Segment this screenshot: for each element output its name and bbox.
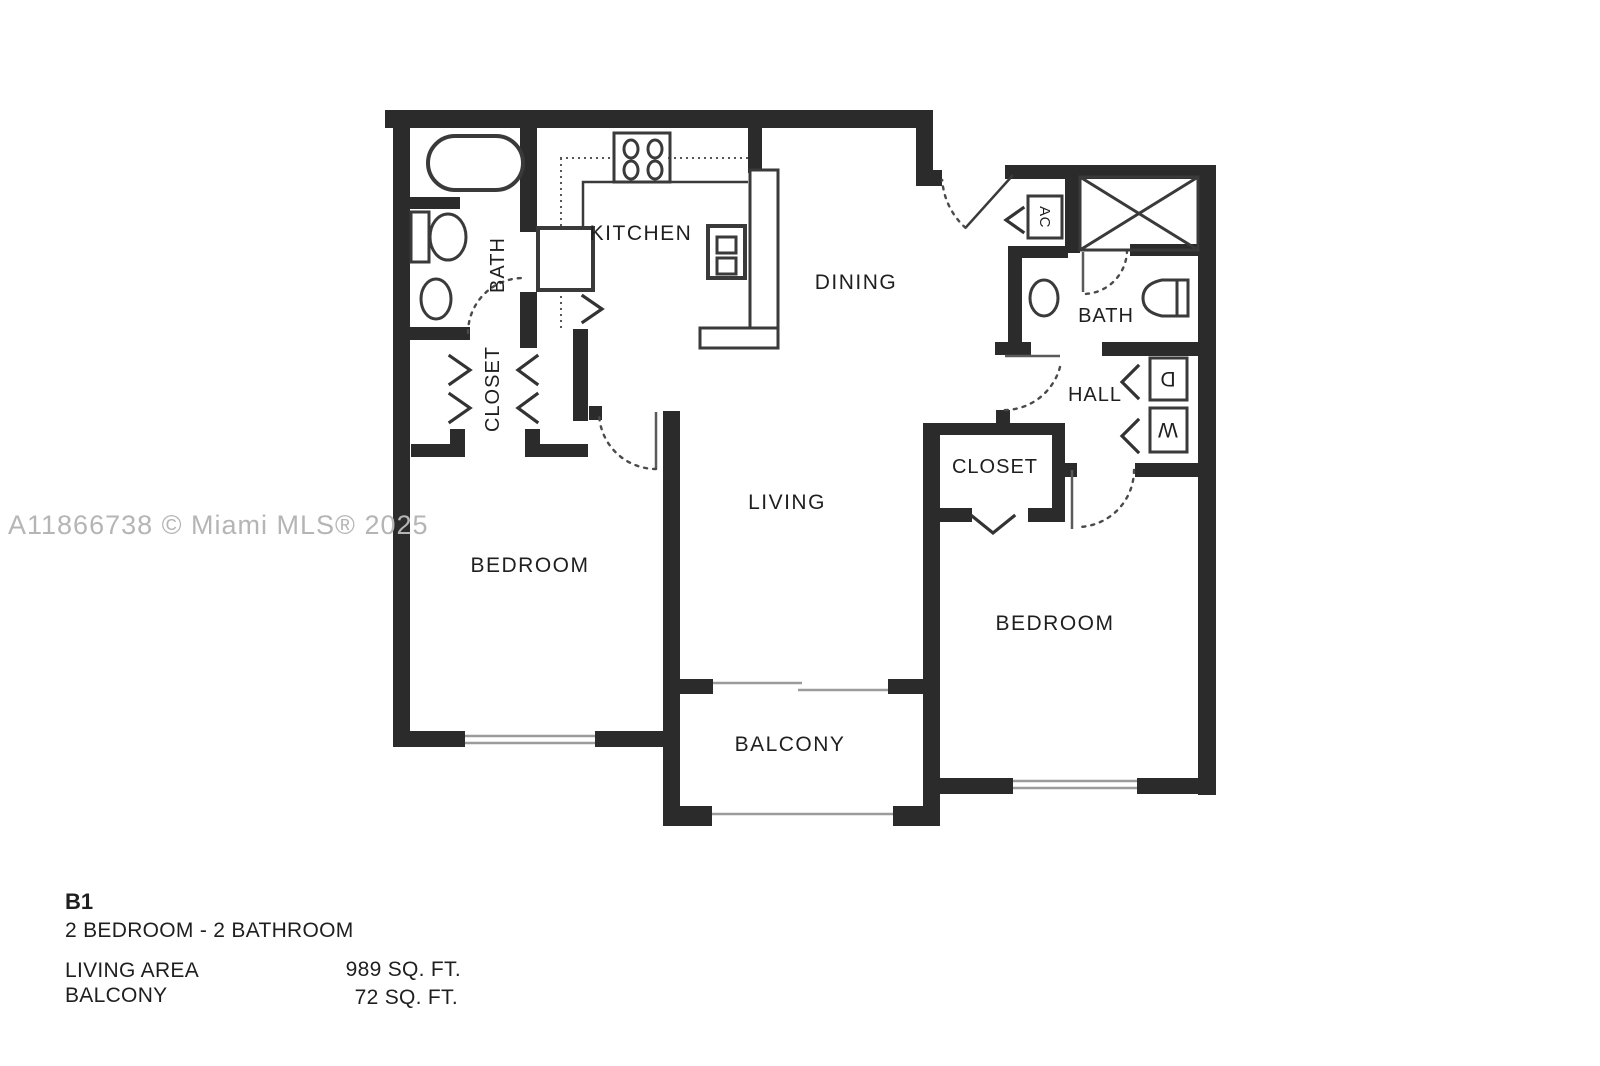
wall-kitchen-top-stub — [748, 128, 762, 173]
plan-type: 2 BEDROOM - 2 BATHROOM — [65, 919, 354, 942]
window-bedroom-right — [1013, 781, 1137, 788]
room-label-closet-left: CLOSET — [482, 346, 504, 432]
stove-burner-4 — [648, 161, 662, 179]
wall-living-divider — [663, 411, 680, 826]
shower-x-cross — [1080, 177, 1198, 250]
room-label-bedroom-right: BEDROOM — [995, 612, 1114, 635]
entry-door-arc — [942, 180, 965, 228]
exterior-walls — [385, 110, 1216, 826]
wall-bedroom-right-bottom-a — [940, 778, 1013, 794]
wall-hall-bottom — [1135, 463, 1198, 477]
room-label-dining: DINING — [815, 271, 898, 294]
wall-right — [1198, 165, 1216, 795]
closet-right-chevron — [972, 516, 1014, 533]
toilet-left-tank — [411, 212, 429, 262]
plan-summary: B1 2 BEDROOM - 2 BATHROOM LIVING AREA 98… — [65, 889, 461, 1009]
wall-bedroom-right-left — [923, 423, 940, 826]
wall-closet-left-stub-a — [450, 429, 465, 446]
wall-closet-right-bottom-a — [928, 508, 972, 522]
bathtub-icon — [428, 136, 523, 190]
wall-bedroom-left-bottom-a — [393, 731, 465, 747]
stove-burner-1 — [624, 140, 638, 158]
wall-bath-left-bottom — [393, 327, 470, 340]
refrigerator-icon — [538, 228, 593, 290]
living-area-value: 989 SQ. FT. — [346, 958, 461, 981]
dryer-door-chevron — [1122, 366, 1138, 398]
closet-left-chevron-1 — [450, 356, 470, 384]
stove-burner-3 — [624, 161, 638, 179]
room-label-bath-left: BATH — [487, 237, 509, 293]
bedroom-right-door-arc — [1077, 470, 1134, 527]
wall-closet-right-bottom-b — [1028, 508, 1065, 522]
closet-left-chevron-2 — [450, 394, 470, 422]
bath-right-door-arc — [1002, 367, 1060, 410]
washer-label: W — [1158, 418, 1178, 441]
kitchen-island-foot — [700, 328, 778, 348]
balcony-area-label: BALCONY — [65, 984, 167, 1007]
room-label-balcony: BALCONY — [735, 733, 846, 756]
kitchen-bifold-chevron — [583, 296, 602, 322]
wall-balcony-post-left — [663, 806, 712, 826]
wall-ac-divider — [1065, 177, 1080, 253]
room-label-bath-right: BATH — [1078, 305, 1134, 327]
wall-balcony-top-left — [663, 679, 713, 694]
sliding-door-living-balcony — [713, 683, 888, 690]
toilet-right-bowl — [1143, 280, 1188, 316]
floorplan-drawing: KITCHEN DINING LIVING BEDROOM BEDROOM BA… — [0, 0, 1600, 1066]
kitchen-island-counter — [750, 170, 778, 330]
stove-burner-2 — [648, 140, 662, 158]
wall-closet-right-top — [928, 423, 1065, 435]
wall-kitchen-left-upper — [520, 128, 537, 232]
wall-bath-right-bottom-a — [995, 342, 1031, 355]
ac-label: AC — [1036, 206, 1053, 228]
room-label-living: LIVING — [748, 491, 826, 514]
wall-bedroom-right-bottom-b — [1137, 778, 1216, 794]
wall-tub-niche — [393, 197, 460, 209]
bedroom-left-door-arc — [599, 412, 656, 469]
room-label-kitchen: KITCHEN — [590, 222, 693, 245]
sink-right-icon — [1030, 280, 1058, 316]
room-label-bedroom-left: BEDROOM — [470, 554, 589, 577]
wall-top — [385, 110, 933, 128]
mls-watermark: A11866738 © Miami MLS® 2025 — [8, 510, 429, 540]
wall-bath-right-bottom-b — [1102, 342, 1216, 356]
toilet-left-bowl — [430, 214, 466, 260]
wall-balcony-post-right — [893, 806, 940, 826]
wall-bath-right-left — [1008, 252, 1022, 345]
closet-left-chevron-4 — [518, 394, 537, 422]
room-label-closet-right: CLOSET — [952, 456, 1038, 478]
living-area-label: LIVING AREA — [65, 959, 199, 982]
closet-left-chevron-3 — [518, 356, 537, 384]
sink-left-icon — [421, 279, 451, 319]
wall-entry-step-cap — [916, 170, 942, 186]
ac-louver-chevron — [1006, 208, 1023, 232]
plan-name: B1 — [65, 889, 93, 914]
dryer-label: D — [1160, 367, 1175, 390]
wall-kitchen-left-lower — [520, 292, 537, 348]
wall-bedroom-right-door-stub — [1063, 463, 1077, 477]
linen-closet-door-arc — [1083, 250, 1127, 294]
wall-closet-left-stub-b — [525, 429, 540, 446]
floorplan-page: { "watermark": "A11866738 © Miami MLS® 2… — [0, 0, 1600, 1066]
wall-closet-left-right — [573, 329, 588, 421]
room-label-hall: HALL — [1068, 384, 1122, 406]
washer-door-chevron — [1122, 420, 1138, 452]
window-bedroom-left — [465, 736, 595, 743]
wall-hall-stub — [996, 410, 1010, 424]
balcony-area-value: 72 SQ. FT. — [355, 986, 458, 1009]
